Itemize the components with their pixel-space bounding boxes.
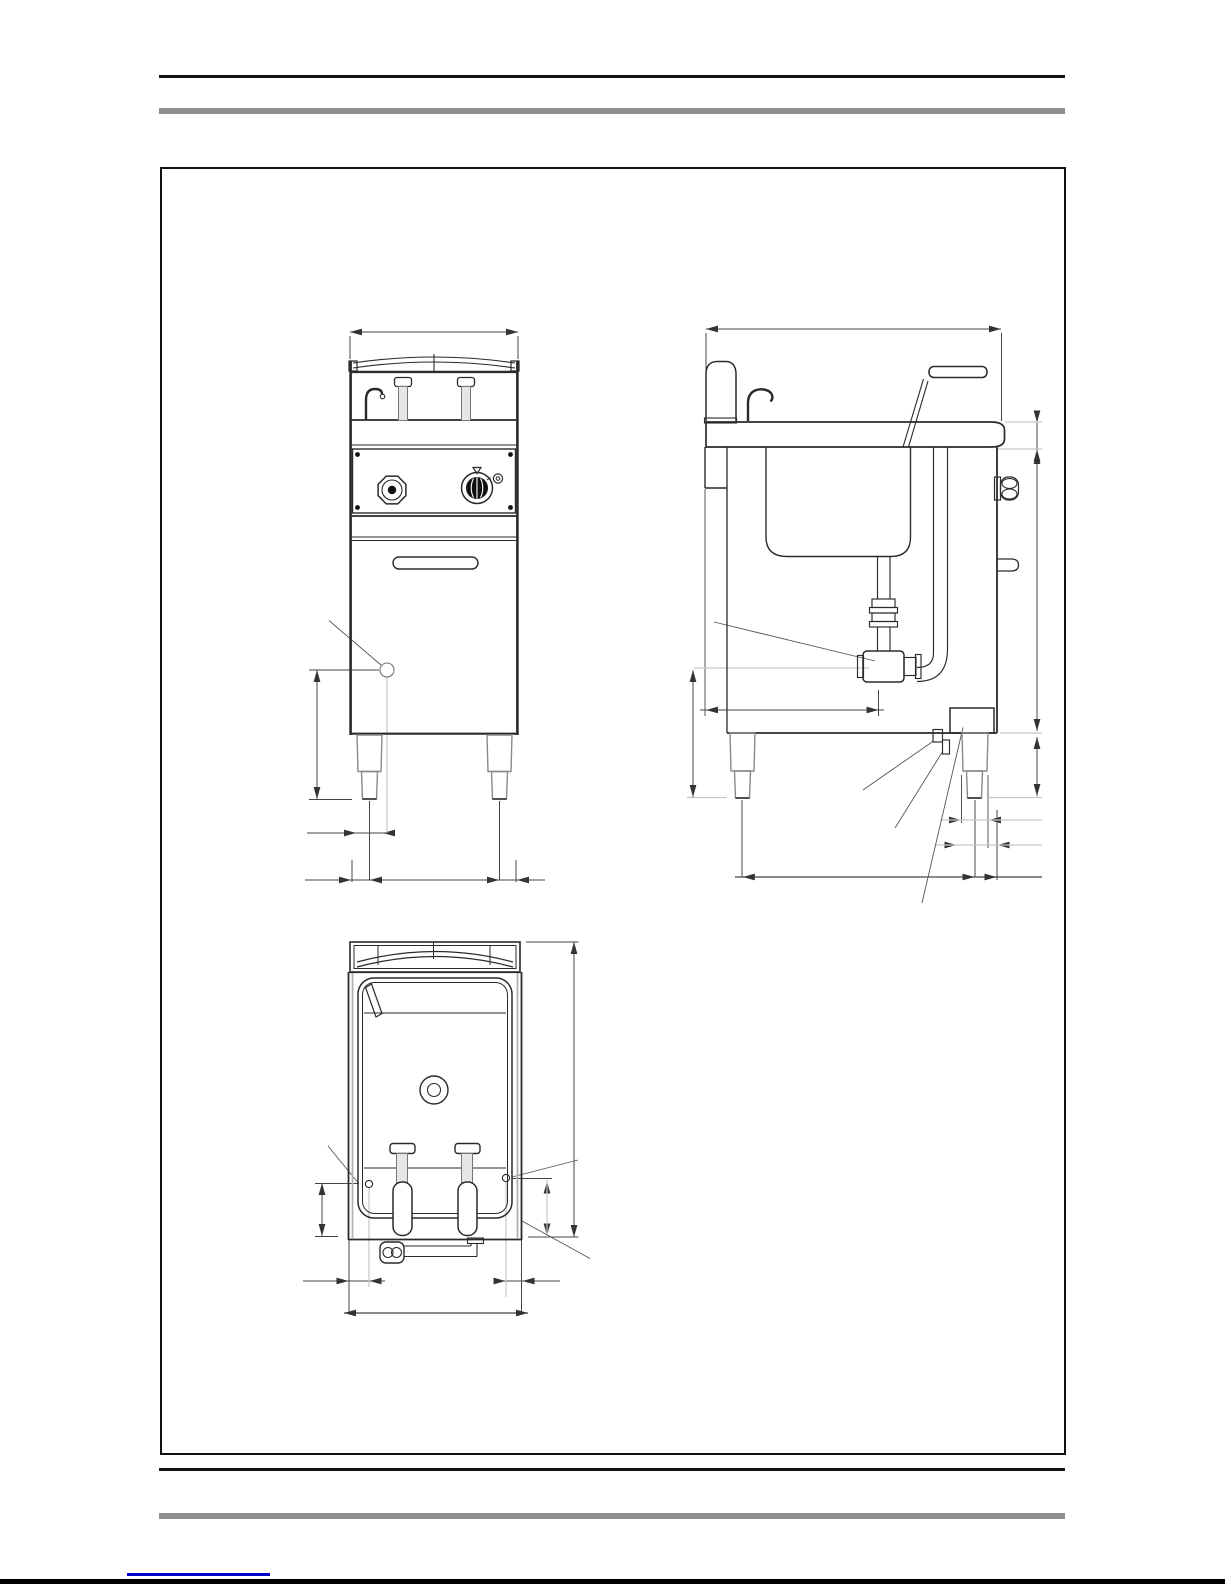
overflow-lever [366,984,383,1017]
fixing-screw-right [502,1174,509,1181]
top-view [303,942,590,1313]
page-bottom-bar [0,1579,1225,1584]
technical-drawing [0,0,1225,1585]
rating-plate [950,708,994,733]
side-machine-outline [705,362,1005,734]
front-leader-lines [329,621,382,666]
side-view [687,329,1042,903]
drain-valve-body [863,651,904,682]
piezo-igniter-button[interactable] [493,474,502,483]
footer-gray-band [159,1513,1065,1519]
well-plan [358,978,512,1218]
side-leader-lines [714,622,963,903]
front-machine-outline [349,354,519,735]
front-basket-handles [395,378,475,421]
basket-handles-plan [390,1144,480,1236]
service-connection-plan [380,1238,484,1263]
front-callout-circle [380,663,394,677]
drain-valve-knob[interactable] [378,476,406,504]
flue-riser [706,362,736,422]
well-side [766,447,911,557]
basket-handle-side [903,367,987,448]
drain-hole [420,1076,448,1104]
front-faucet [366,389,385,420]
footer-rule [159,1468,1065,1471]
rear-connections [995,477,1019,571]
front-view [305,332,545,882]
fixing-screw-left [365,1180,372,1187]
pipe-stub [997,559,1019,571]
footer-link[interactable] [127,1573,270,1576]
manual-page [0,0,1225,1585]
gas-control-knob[interactable] [462,468,493,504]
back-rail-plan [350,942,520,972]
top-dimension-lines [303,942,579,1313]
side-extension-lines [687,422,1042,845]
worktop [706,422,1005,447]
front-legs [357,735,512,799]
front-dimension-lines [305,332,545,882]
side-faucet [748,389,772,421]
drain-piping [858,447,948,682]
door-handle[interactable] [393,557,478,569]
